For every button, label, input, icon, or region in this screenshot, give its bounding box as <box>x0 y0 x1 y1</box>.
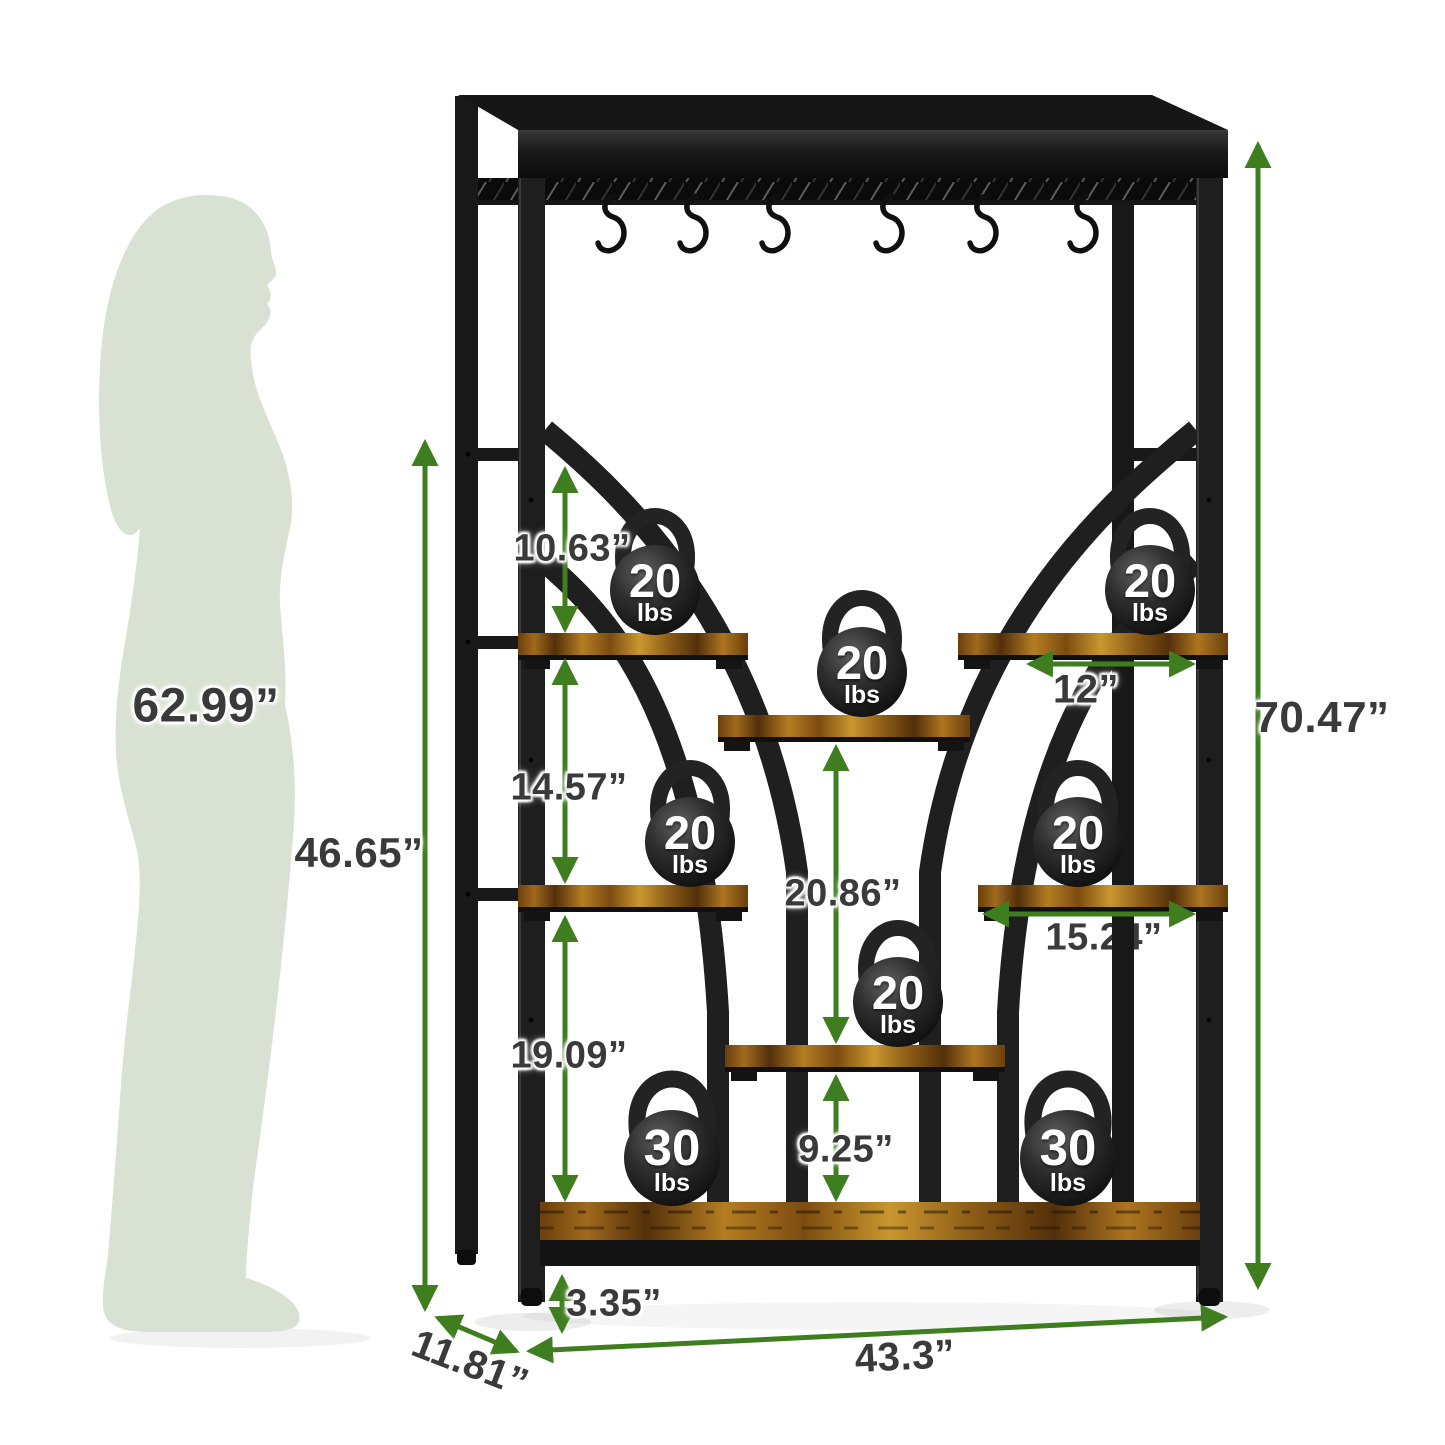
product-dimension-diagram: 15.24” <box>0 0 1445 1445</box>
ground-clearance-label: 3.35” <box>566 1283 661 1326</box>
kettlebell-weight: 20 <box>872 971 924 1014</box>
kettlebell-label-top-left: 20 lbs <box>629 559 681 625</box>
kettlebell-label-bottom-left: 30 lbs <box>644 1125 701 1195</box>
kettlebell-weight: 20 <box>629 559 681 602</box>
kettlebell-label-upper-center: 20 lbs <box>836 641 888 707</box>
top-shelf-gap-label: 10.63” <box>513 528 630 571</box>
inner-height-label: 46.65” <box>294 829 423 877</box>
middle-shelf-gap-label: 14.57” <box>510 767 627 810</box>
depth-label: 11.81” <box>406 1321 535 1406</box>
person-height-label: 62.99” <box>132 679 279 734</box>
kettlebell-weight: 30 <box>1040 1125 1097 1172</box>
kettlebell-weight: 20 <box>1124 559 1176 602</box>
kettlebell-label-middle-left: 20 lbs <box>664 811 716 877</box>
kettlebell-label-lower-center: 20 lbs <box>872 971 924 1037</box>
overall-height-label: 70.47” <box>1254 693 1389 743</box>
kettlebell-weight: 20 <box>664 811 716 854</box>
center-bottom-gap-label: 9.25” <box>798 1129 893 1172</box>
kettlebell-weight: 30 <box>644 1125 701 1172</box>
side-shelf-width-label: 12” <box>1053 668 1119 713</box>
kettlebell-weight: 20 <box>1052 811 1104 854</box>
bottom-shelf-gap-label: 19.09” <box>510 1035 627 1078</box>
center-column-height-label: 20.86” <box>784 873 901 916</box>
overall-width-label: 43.3” <box>854 1332 957 1382</box>
labels-layer: 62.99” 46.65” 70.47” 10.63” 14.57” 19.09… <box>0 0 1445 1445</box>
kettlebell-weight: 20 <box>836 641 888 684</box>
kettlebell-label-top-right: 20 lbs <box>1124 559 1176 625</box>
kettlebell-label-bottom-right: 30 lbs <box>1040 1125 1097 1195</box>
kettlebell-label-middle-right: 20 lbs <box>1052 811 1104 877</box>
